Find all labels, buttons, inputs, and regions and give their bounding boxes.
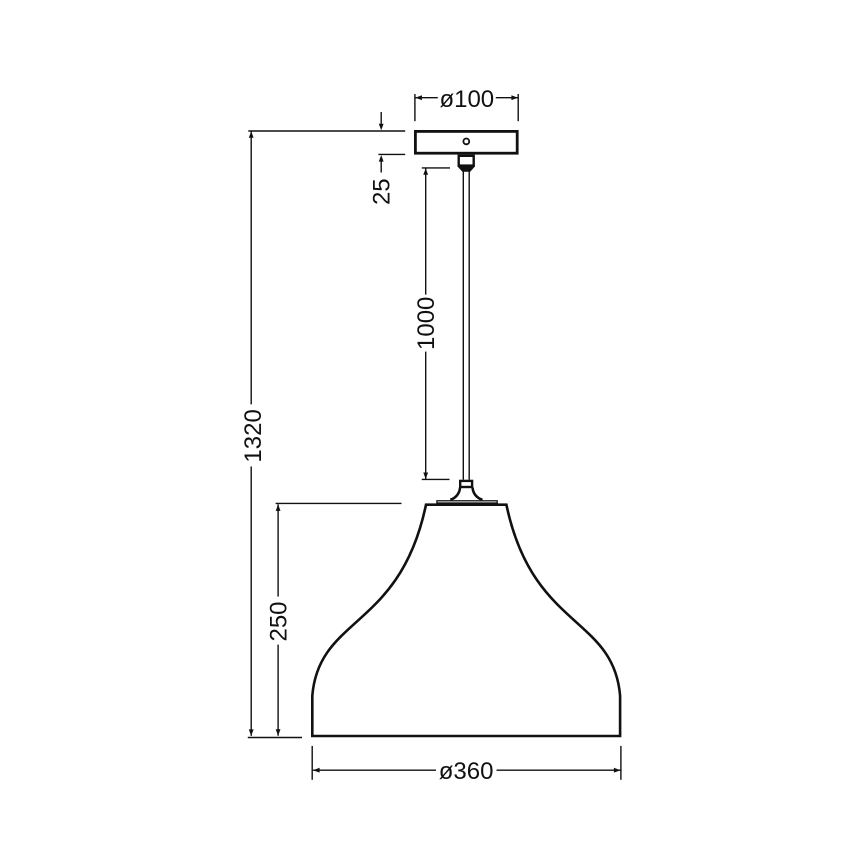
svg-text:1320: 1320 <box>240 409 267 462</box>
svg-text:ø360: ø360 <box>439 758 494 785</box>
svg-text:1000: 1000 <box>413 297 440 350</box>
svg-text:25: 25 <box>369 178 396 205</box>
svg-text:250: 250 <box>265 601 292 641</box>
svg-text:ø100: ø100 <box>439 86 494 113</box>
